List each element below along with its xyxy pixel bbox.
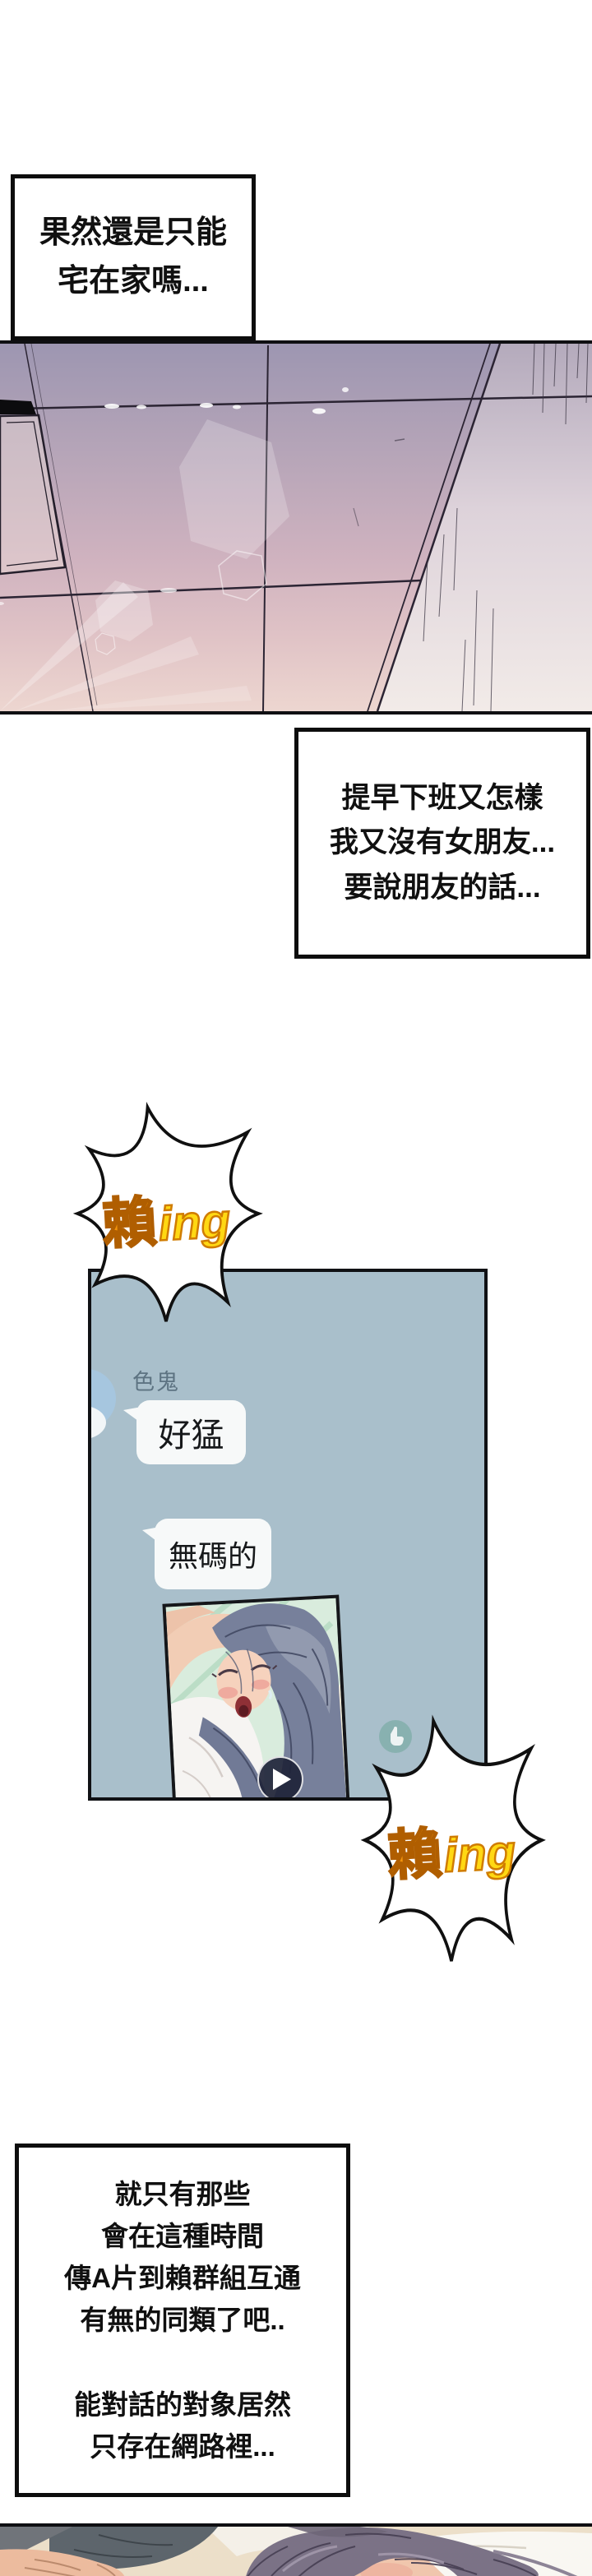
sfx-bubble-2: 賴ing bbox=[355, 1704, 548, 1977]
narration-line: 傳A片到賴群組互通 bbox=[64, 2257, 301, 2299]
play-button[interactable] bbox=[257, 1756, 303, 1797]
ceiling-photo-panel bbox=[0, 340, 592, 715]
thumbnail-artwork bbox=[166, 1598, 347, 1797]
narration-box-1: 果然還是只能 宅在家嗎... bbox=[11, 174, 256, 340]
sfx-text: 賴ing bbox=[354, 1804, 550, 1893]
sfx-bubble-1: 賴ing bbox=[67, 1092, 265, 1335]
chat-message-bubble: 好猛 bbox=[136, 1400, 246, 1464]
narration-line: 有無的同類了吧.. bbox=[80, 2299, 284, 2341]
chat-message-text: 好猛 bbox=[159, 1408, 224, 1456]
narration-line: 提早下班又怎樣 bbox=[341, 776, 543, 821]
video-thumbnail[interactable] bbox=[162, 1595, 349, 1797]
narration-line: 會在這種時間 bbox=[101, 2215, 264, 2257]
sfx-zh-char: 賴 bbox=[101, 1191, 160, 1255]
narration-line: 宅在家嗎... bbox=[58, 257, 209, 306]
chat-sender-name: 色鬼 bbox=[132, 1364, 180, 1396]
narration-line: 果然還是只能 bbox=[39, 209, 227, 257]
narration-line: 只存在網路裡... bbox=[90, 2426, 275, 2467]
narration-line: 我又沒有女朋友... bbox=[330, 821, 555, 865]
chat-message-bubble: 無碼的 bbox=[155, 1519, 271, 1589]
sfx-latin-chars: ing bbox=[442, 1825, 516, 1882]
ceiling-artwork bbox=[0, 344, 592, 711]
comic-page: { "page": {"kind": "webtoon-comic-page",… bbox=[0, 0, 592, 2576]
narration-box-2: 提早下班又怎樣 我又沒有女朋友... 要說朋友的話... bbox=[294, 728, 590, 959]
sfx-text: 賴ing bbox=[66, 1172, 267, 1261]
bottom-art-panel bbox=[0, 2523, 592, 2576]
play-icon bbox=[273, 1769, 291, 1790]
sfx-zh-char: 賴 bbox=[386, 1823, 446, 1886]
bottom-artwork bbox=[0, 2527, 592, 2576]
bubble-tail bbox=[123, 1407, 141, 1423]
sfx-latin-chars: ing bbox=[157, 1194, 231, 1251]
chat-message-text: 無碼的 bbox=[169, 1533, 257, 1575]
narration-line: 就只有那些 bbox=[115, 2173, 251, 2215]
narration-line: 能對話的對象居然 bbox=[74, 2384, 291, 2426]
narration-line: 要說朋友的話... bbox=[344, 866, 540, 910]
narration-box-3: 就只有那些 會在這種時間 傳A片到賴群組互通 有無的同類了吧.. 能對話的對象居… bbox=[15, 2144, 350, 2497]
bubble-tail bbox=[142, 1527, 160, 1543]
